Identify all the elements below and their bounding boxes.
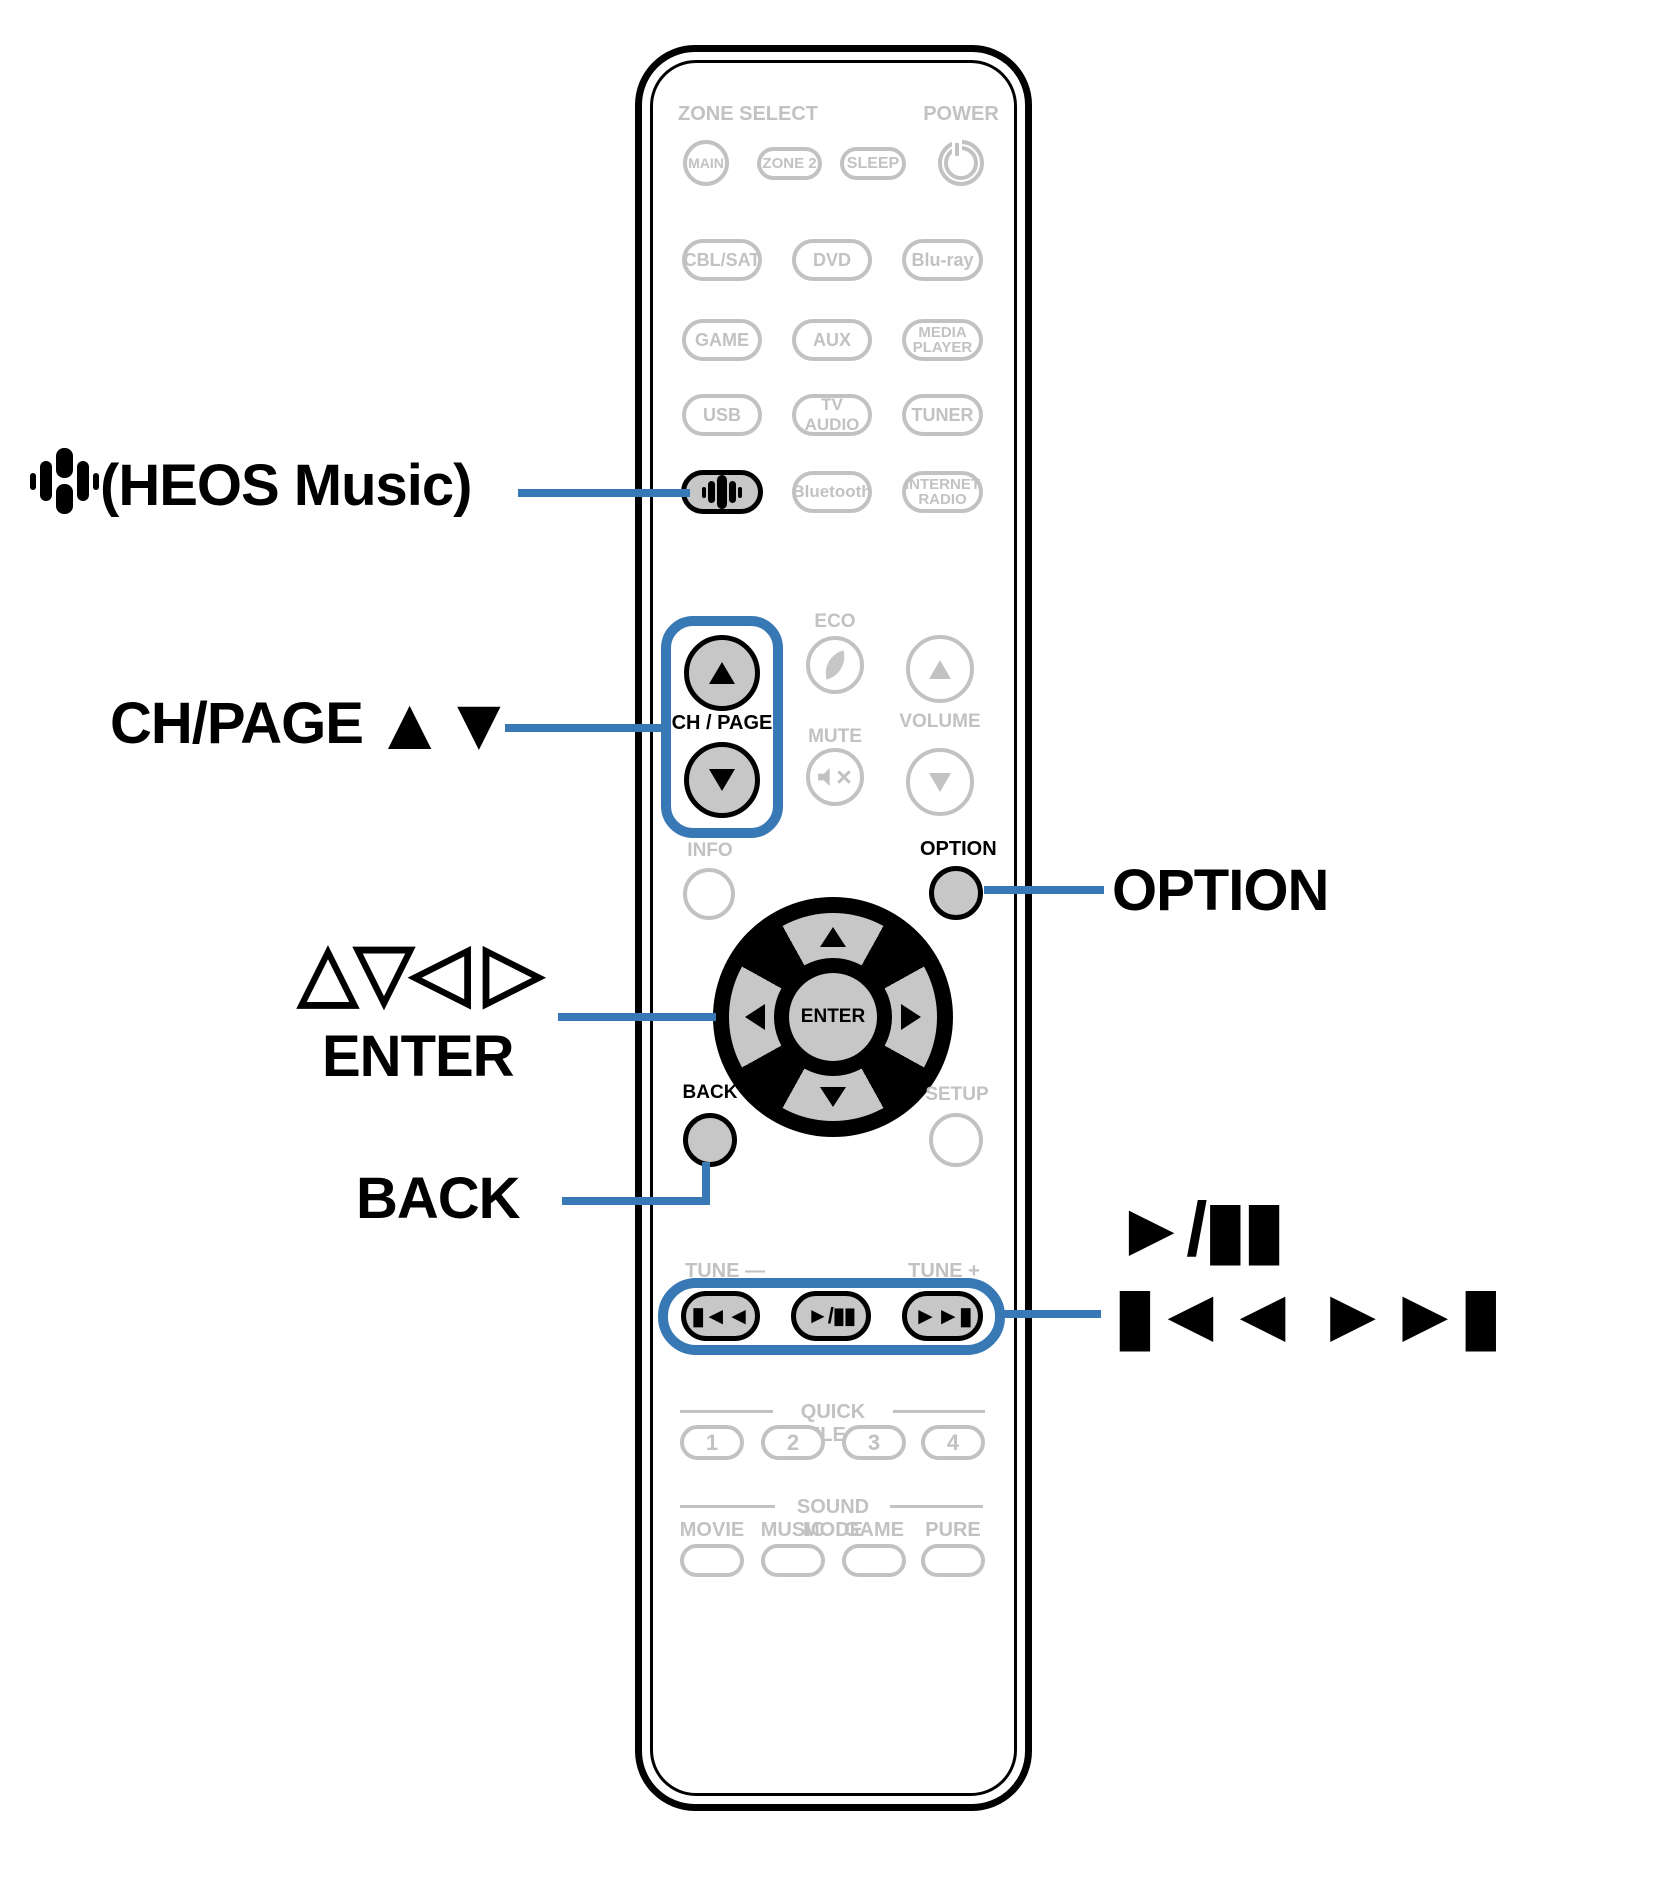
back-callout-line-v [702,1162,710,1205]
quick-select-3-button[interactable]: 3 [842,1425,906,1460]
heos-icon [702,475,742,509]
info-label: INFO [679,840,741,862]
media-player-button[interactable]: MEDIA PLAYER [902,319,983,361]
option-button[interactable] [929,866,983,920]
volume-up-icon [929,660,951,679]
tuner-button[interactable]: TUNER [902,394,983,436]
volume-up-button[interactable] [906,635,974,703]
cursor-left-icon[interactable] [745,1004,765,1030]
ch-page-callout-line [505,724,663,732]
setup-label: SETUP [924,1084,990,1106]
cursor-pad[interactable]: ENTER [713,897,953,1137]
cursor-down-icon[interactable] [820,1087,846,1107]
volume-down-button[interactable] [906,748,974,816]
option-button-label: OPTION [920,838,992,861]
quick-select-2-button[interactable]: 2 [761,1425,825,1460]
cursor-up-icon[interactable] [820,927,846,947]
mute-label: MUTE [800,726,870,748]
music-button[interactable] [761,1544,825,1577]
tv-audio-button[interactable]: TV AUDIO [792,394,872,436]
cursor-callout-line [558,1013,716,1021]
heos-button[interactable] [681,470,763,514]
game-button[interactable]: GAME [682,319,762,361]
power-icon [944,146,978,180]
back-button-label: BACK [678,1082,742,1104]
sleep-button[interactable]: SLEEP [840,147,906,180]
page: ZONE SELECT POWER MAIN ZONE 2 SLEEP CBL/… [0,0,1665,1878]
bluetooth-button[interactable]: Bluetooth [792,471,872,513]
game-mode-button[interactable] [842,1544,906,1577]
pure-button[interactable] [921,1544,985,1577]
enter-callout-label: ENTER [322,1026,514,1088]
ch-page-button-label: CH / PAGE [670,712,774,735]
movie-button[interactable] [680,1544,744,1577]
zone-select-header: ZONE SELECT [673,103,823,126]
speaker-mute-icon [818,768,835,787]
power-header: POWER [920,103,1002,126]
volume-down-icon [929,773,951,792]
sound-mode-rule-right [890,1505,983,1508]
playback-highlight-box [658,1278,1005,1355]
quick-select-1-button[interactable]: 1 [680,1425,744,1460]
playback-callout-line [1001,1310,1101,1318]
quick-select-rule-left [680,1410,773,1413]
skip-callout-label: ▮◄◄ ►►▮ [1114,1278,1499,1354]
play-pause-callout-label: ►/▮▮ [1114,1192,1282,1268]
eco-button[interactable] [806,636,864,694]
music-label: MUSIC [758,1519,828,1542]
eco-label: ECO [805,611,865,633]
zone2-button[interactable]: ZONE 2 [757,147,822,180]
heos-callout-icon [30,448,99,514]
quick-select-4-button[interactable]: 4 [921,1425,985,1460]
setup-button[interactable] [929,1113,983,1167]
aux-button[interactable]: AUX [792,319,872,361]
movie-label: MOVIE [677,1519,747,1542]
quick-select-rule-right [893,1410,985,1413]
cursor-callout-label: △▽◁ ▷ [298,930,540,1012]
leaf-icon [820,650,849,679]
power-button[interactable] [938,140,984,186]
dvd-button[interactable]: DVD [792,239,872,281]
enter-button[interactable]: ENTER [789,973,877,1061]
volume-label: VOLUME [898,711,982,733]
main-zone-button[interactable]: MAIN [683,140,729,186]
cbl-sat-button[interactable]: CBL/SAT [682,239,762,281]
back-callout-label: BACK [356,1168,520,1230]
game-mode-label: GAME [839,1519,909,1542]
cursor-right-icon[interactable] [901,1004,921,1030]
usb-button[interactable]: USB [682,394,762,436]
info-button[interactable] [683,868,735,920]
option-callout-line [984,886,1104,894]
blu-ray-button[interactable]: Blu-ray [902,239,983,281]
heos-callout-line [518,489,690,497]
sound-mode-rule-left [680,1505,775,1508]
mute-button[interactable]: × [806,748,864,806]
back-button[interactable] [683,1113,737,1167]
up-down-arrows-glyph: ▲▼ [373,681,511,766]
back-callout-line-h [562,1197,710,1205]
pure-label: PURE [918,1519,988,1542]
option-callout-label: OPTION [1112,860,1328,922]
heos-callout-label: (HEOS Music) [100,455,472,517]
ch-page-callout-label: CH/PAGE ▲▼ [110,688,511,758]
internet-radio-button[interactable]: INTERNET RADIO [902,471,983,513]
